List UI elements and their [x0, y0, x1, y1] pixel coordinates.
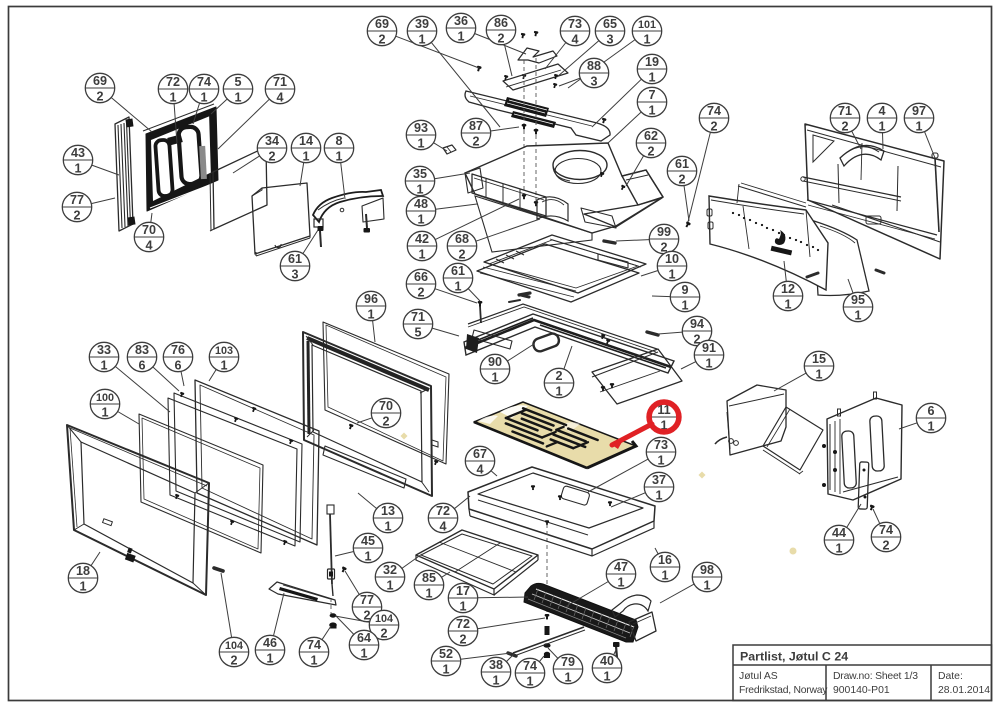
svg-text:45: 45: [361, 534, 375, 548]
svg-text:1: 1: [454, 280, 461, 294]
svg-text:74: 74: [707, 104, 721, 118]
svg-text:1: 1: [442, 663, 449, 677]
svg-text:93: 93: [414, 121, 428, 135]
svg-text:98: 98: [700, 563, 714, 577]
svg-text:2: 2: [382, 415, 389, 429]
svg-text:1: 1: [784, 298, 791, 312]
svg-text:68: 68: [455, 232, 469, 246]
svg-text:39: 39: [415, 17, 429, 31]
svg-text:40: 40: [600, 654, 614, 668]
svg-text:2: 2: [497, 32, 504, 46]
svg-text:1: 1: [364, 550, 371, 564]
svg-text:67: 67: [473, 447, 487, 461]
svg-text:73: 73: [654, 438, 668, 452]
svg-text:97: 97: [912, 104, 926, 118]
svg-text:77: 77: [70, 193, 84, 207]
svg-text:1: 1: [854, 309, 861, 323]
svg-text:1: 1: [386, 579, 393, 593]
svg-text:2: 2: [459, 633, 466, 647]
svg-text:17: 17: [456, 584, 470, 598]
svg-text:1: 1: [417, 213, 424, 227]
svg-text:72: 72: [166, 75, 180, 89]
svg-text:Partlist, Jøtul C 24: Partlist, Jøtul C 24: [740, 650, 848, 664]
svg-text:65: 65: [603, 17, 617, 31]
svg-text:1: 1: [648, 71, 655, 85]
svg-text:1: 1: [703, 579, 710, 593]
svg-text:52: 52: [439, 647, 453, 661]
svg-text:1: 1: [417, 137, 424, 151]
svg-text:76: 76: [171, 343, 185, 357]
svg-text:1: 1: [266, 652, 273, 666]
svg-text:1: 1: [657, 454, 664, 468]
svg-text:Jøtul AS: Jøtul AS: [739, 671, 778, 682]
svg-text:101: 101: [638, 19, 656, 31]
svg-text:1: 1: [491, 371, 498, 385]
svg-text:Fredrikstad, Norway: Fredrikstad, Norway: [739, 685, 828, 696]
svg-text:1: 1: [835, 542, 842, 556]
svg-text:28.01.2014: 28.01.2014: [938, 685, 990, 696]
svg-text:70: 70: [142, 223, 156, 237]
svg-text:2: 2: [710, 120, 717, 134]
svg-text:73: 73: [568, 17, 582, 31]
svg-text:70: 70: [379, 399, 393, 413]
svg-text:12: 12: [781, 282, 795, 296]
svg-text:90: 90: [488, 355, 502, 369]
svg-text:1: 1: [457, 30, 464, 44]
svg-text:74: 74: [523, 659, 537, 673]
svg-text:3: 3: [590, 75, 597, 89]
svg-text:71: 71: [838, 104, 852, 118]
svg-text:32: 32: [383, 563, 397, 577]
svg-text:74: 74: [879, 523, 893, 537]
svg-text:2: 2: [458, 248, 465, 262]
svg-text:104: 104: [375, 613, 393, 625]
svg-text:1: 1: [526, 675, 533, 689]
svg-text:13: 13: [381, 504, 395, 518]
svg-text:3: 3: [291, 268, 298, 282]
svg-text:18: 18: [76, 564, 90, 578]
svg-text:61: 61: [451, 264, 465, 278]
svg-text:88: 88: [587, 59, 601, 73]
svg-text:77: 77: [360, 593, 374, 607]
svg-text:36: 36: [454, 14, 468, 28]
svg-text:2: 2: [472, 135, 479, 149]
svg-text:1: 1: [220, 359, 227, 373]
svg-text:1: 1: [915, 120, 922, 134]
svg-text:1: 1: [648, 104, 655, 118]
svg-text:16: 16: [658, 553, 672, 567]
svg-text:2: 2: [647, 145, 654, 159]
svg-text:6: 6: [174, 359, 181, 373]
svg-text:1: 1: [459, 600, 466, 614]
svg-text:4: 4: [476, 463, 483, 477]
svg-text:1: 1: [681, 299, 688, 313]
svg-text:900140-P01: 900140-P01: [833, 685, 890, 696]
svg-text:43: 43: [71, 146, 85, 160]
svg-text:2: 2: [882, 539, 889, 553]
svg-text:61: 61: [288, 252, 302, 266]
svg-text:1: 1: [603, 670, 610, 684]
svg-text:4: 4: [439, 520, 446, 534]
svg-text:1: 1: [643, 33, 650, 47]
svg-text:1: 1: [360, 647, 367, 661]
svg-text:2: 2: [96, 90, 103, 104]
svg-text:1: 1: [100, 359, 107, 373]
svg-text:86: 86: [494, 16, 508, 30]
svg-text:1: 1: [302, 150, 309, 164]
svg-text:3: 3: [606, 33, 613, 47]
svg-text:95: 95: [851, 293, 865, 307]
svg-text:72: 72: [436, 504, 450, 518]
svg-text:9: 9: [681, 283, 688, 297]
svg-text:1: 1: [234, 91, 241, 105]
svg-text:69: 69: [93, 74, 107, 88]
svg-text:35: 35: [413, 167, 427, 181]
svg-text:1: 1: [384, 520, 391, 534]
svg-text:7: 7: [648, 88, 655, 102]
svg-text:1: 1: [418, 248, 425, 262]
svg-text:1: 1: [705, 357, 712, 371]
svg-text:1: 1: [101, 406, 108, 420]
svg-text:1: 1: [617, 576, 624, 590]
svg-text:34: 34: [265, 134, 279, 148]
svg-text:74: 74: [307, 638, 321, 652]
svg-text:1: 1: [425, 587, 432, 601]
svg-text:1: 1: [169, 91, 176, 105]
svg-text:4: 4: [571, 33, 578, 47]
svg-text:4: 4: [276, 91, 283, 105]
svg-text:14: 14: [299, 134, 313, 148]
svg-text:42: 42: [415, 232, 429, 246]
svg-text:66: 66: [414, 270, 428, 284]
svg-text:1: 1: [418, 33, 425, 47]
svg-text:1: 1: [555, 385, 562, 399]
svg-text:71: 71: [273, 75, 287, 89]
svg-text:2: 2: [73, 209, 80, 223]
svg-text:2: 2: [268, 150, 275, 164]
svg-text:79: 79: [561, 655, 575, 669]
svg-text:69: 69: [375, 17, 389, 31]
svg-text:94: 94: [690, 317, 704, 331]
svg-text:Date:: Date:: [938, 671, 963, 682]
svg-text:5: 5: [234, 75, 241, 89]
svg-text:1: 1: [564, 671, 571, 685]
svg-text:10: 10: [665, 252, 679, 266]
svg-text:1: 1: [878, 120, 885, 134]
svg-text:2: 2: [417, 286, 424, 300]
svg-text:2: 2: [378, 33, 385, 47]
svg-text:46: 46: [263, 636, 277, 650]
svg-text:1: 1: [200, 91, 207, 105]
svg-text:4: 4: [878, 104, 885, 118]
svg-text:85: 85: [422, 571, 436, 585]
svg-text:4: 4: [145, 239, 152, 253]
svg-text:1: 1: [367, 308, 374, 322]
svg-text:38: 38: [489, 658, 503, 672]
svg-text:83: 83: [135, 343, 149, 357]
svg-text:1: 1: [655, 489, 662, 503]
svg-text:64: 64: [357, 631, 371, 645]
svg-text:1: 1: [492, 674, 499, 688]
svg-text:72: 72: [456, 617, 470, 631]
svg-text:8: 8: [335, 134, 342, 148]
svg-text:1: 1: [310, 654, 317, 668]
svg-text:1: 1: [74, 162, 81, 176]
svg-text:6: 6: [927, 404, 934, 418]
svg-text:91: 91: [702, 341, 716, 355]
svg-text:1: 1: [927, 420, 934, 434]
svg-text:Draw.no: Sheet 1/3: Draw.no: Sheet 1/3: [833, 671, 918, 682]
svg-text:104: 104: [225, 640, 243, 652]
svg-text:37: 37: [652, 473, 666, 487]
svg-text:44: 44: [832, 526, 846, 540]
svg-text:1: 1: [815, 368, 822, 382]
svg-text:6: 6: [138, 359, 145, 373]
svg-text:1: 1: [661, 569, 668, 583]
svg-text:99: 99: [657, 225, 671, 239]
svg-text:1: 1: [416, 183, 423, 197]
svg-text:33: 33: [97, 343, 111, 357]
svg-text:61: 61: [675, 157, 689, 171]
svg-text:1: 1: [335, 150, 342, 164]
svg-text:103: 103: [215, 345, 233, 357]
svg-text:2: 2: [555, 369, 562, 383]
svg-text:5: 5: [414, 326, 421, 340]
svg-text:1: 1: [79, 580, 86, 594]
svg-text:2: 2: [841, 120, 848, 134]
svg-text:2: 2: [230, 654, 237, 668]
svg-text:19: 19: [645, 55, 659, 69]
svg-text:87: 87: [469, 119, 483, 133]
svg-text:100: 100: [96, 392, 114, 404]
svg-text:74: 74: [197, 75, 211, 89]
svg-text:2: 2: [380, 627, 387, 641]
svg-text:96: 96: [364, 292, 378, 306]
svg-text:71: 71: [411, 310, 425, 324]
svg-text:47: 47: [614, 560, 628, 574]
svg-text:15: 15: [812, 352, 826, 366]
svg-text:62: 62: [644, 129, 658, 143]
svg-text:1: 1: [668, 268, 675, 282]
svg-text:48: 48: [414, 197, 428, 211]
svg-text:2: 2: [678, 173, 685, 187]
